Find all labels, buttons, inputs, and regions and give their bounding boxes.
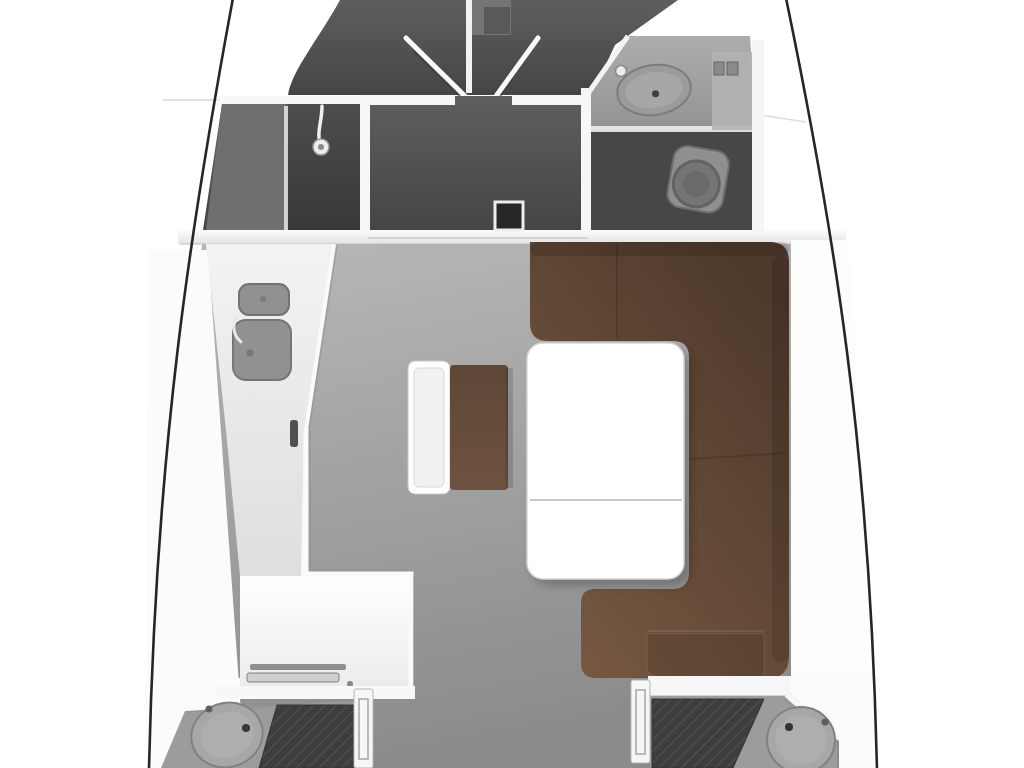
soap-dish-1 xyxy=(714,62,724,75)
starboard-faucet-icon xyxy=(822,719,829,726)
bench-seat xyxy=(450,365,508,490)
forward-cabin-top-wall-left xyxy=(363,95,455,105)
nav-instrument-bar xyxy=(250,664,346,670)
settee-back-top xyxy=(530,242,789,256)
settee-back-right xyxy=(772,256,789,662)
shower-head-center xyxy=(318,144,324,150)
forward-cabin xyxy=(360,95,588,231)
port-faucet-icon xyxy=(206,706,213,713)
bathroom xyxy=(581,36,764,234)
bow-center-wall xyxy=(466,0,472,93)
starboard-sink-drain xyxy=(785,723,793,731)
salon-table xyxy=(527,343,684,579)
starboard-door-frame xyxy=(631,680,650,763)
forward-cabin-room xyxy=(370,96,582,230)
soap-dish-2 xyxy=(727,62,738,75)
bench-seat-shadow xyxy=(506,368,513,488)
galley-sink-small-drain xyxy=(260,296,266,302)
forward-cabin-step xyxy=(495,202,523,230)
shower-floor-dark xyxy=(288,104,360,230)
bathroom-faucet-icon xyxy=(616,66,627,77)
corner-cushion xyxy=(647,634,764,677)
starboard-aft-cabin xyxy=(631,676,877,768)
shower-divider xyxy=(284,106,288,230)
salon-table-group xyxy=(527,343,691,586)
port-aft-top-wall xyxy=(215,686,415,699)
galley-sink-large xyxy=(233,320,291,380)
floorplan-canvas xyxy=(0,0,1024,768)
nav-instrument-panel xyxy=(247,673,339,682)
bench-backrest-panel xyxy=(414,368,444,487)
bow-locker-panel xyxy=(484,7,510,34)
port-sink-drain xyxy=(242,724,250,732)
galley-handle xyxy=(290,420,298,447)
forward-cabin-left-wall xyxy=(360,95,370,231)
bathroom-right-wall xyxy=(752,40,764,232)
shower-bench xyxy=(206,104,286,230)
shower-top-wall xyxy=(218,96,370,105)
shower-room xyxy=(203,96,370,230)
bathroom-left-wall xyxy=(581,88,591,234)
toilet-group xyxy=(665,144,731,215)
galley-sink-large-drain xyxy=(247,350,254,357)
port-door-frame xyxy=(354,689,373,768)
starboard-aft-top-wall xyxy=(648,676,790,696)
starboard-deck-band xyxy=(791,240,874,690)
salon-bench xyxy=(408,361,513,494)
forward-cabin-top-wall-right xyxy=(512,95,588,105)
yacht-floorplan xyxy=(0,0,1024,768)
